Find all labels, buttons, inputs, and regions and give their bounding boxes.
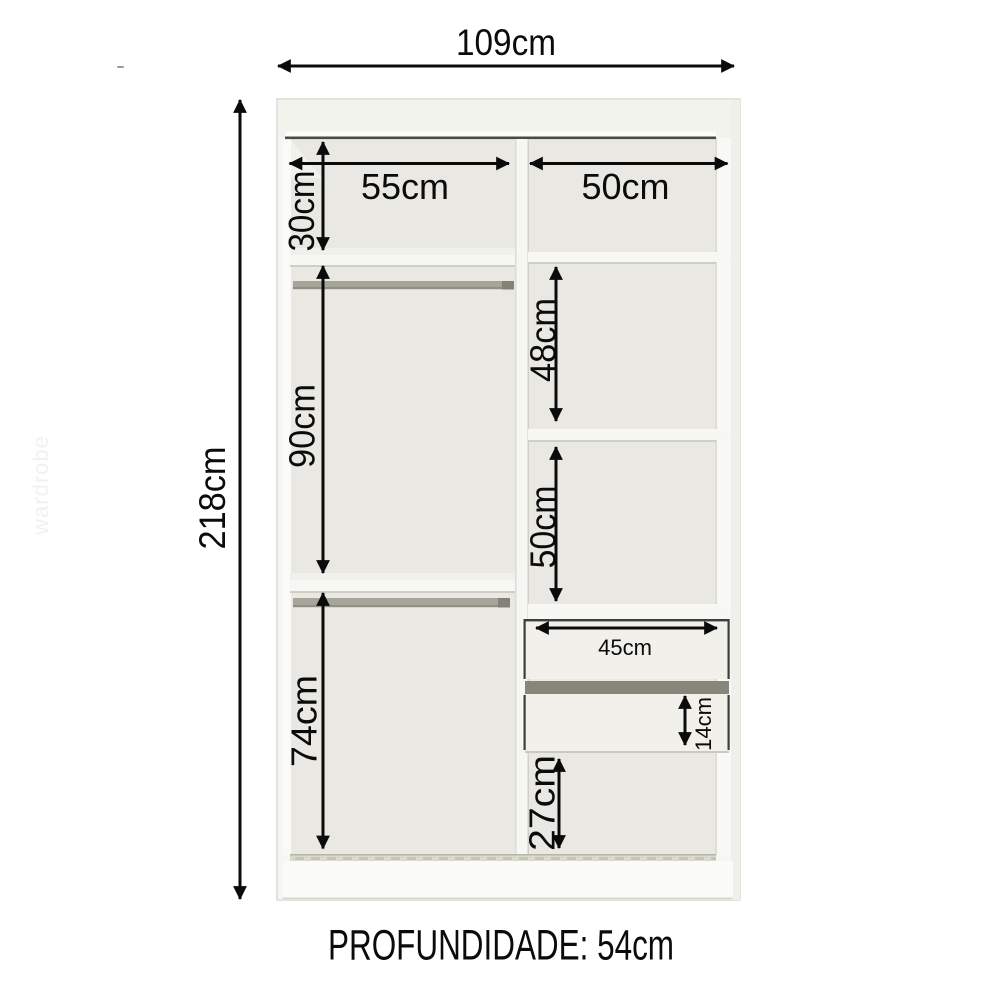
svg-text:109cm: 109cm xyxy=(456,22,556,63)
svg-text:50cm: 50cm xyxy=(581,166,669,207)
svg-text:90cm: 90cm xyxy=(282,384,323,468)
svg-text:wardrobe: wardrobe xyxy=(28,435,53,536)
svg-text:PROFUNDIDADE: 54cm: PROFUNDIDADE: 54cm xyxy=(328,922,674,970)
svg-text:50cm: 50cm xyxy=(523,486,564,569)
svg-text:14cm: 14cm xyxy=(691,697,716,751)
svg-text:48cm: 48cm xyxy=(523,298,564,382)
svg-text:30cm: 30cm xyxy=(281,171,322,252)
svg-text:218cm: 218cm xyxy=(192,447,233,550)
svg-text:55cm: 55cm xyxy=(361,166,449,207)
svg-text:45cm: 45cm xyxy=(598,635,652,660)
svg-text:74cm: 74cm xyxy=(284,675,325,767)
svg-text:27cm: 27cm xyxy=(522,755,563,851)
